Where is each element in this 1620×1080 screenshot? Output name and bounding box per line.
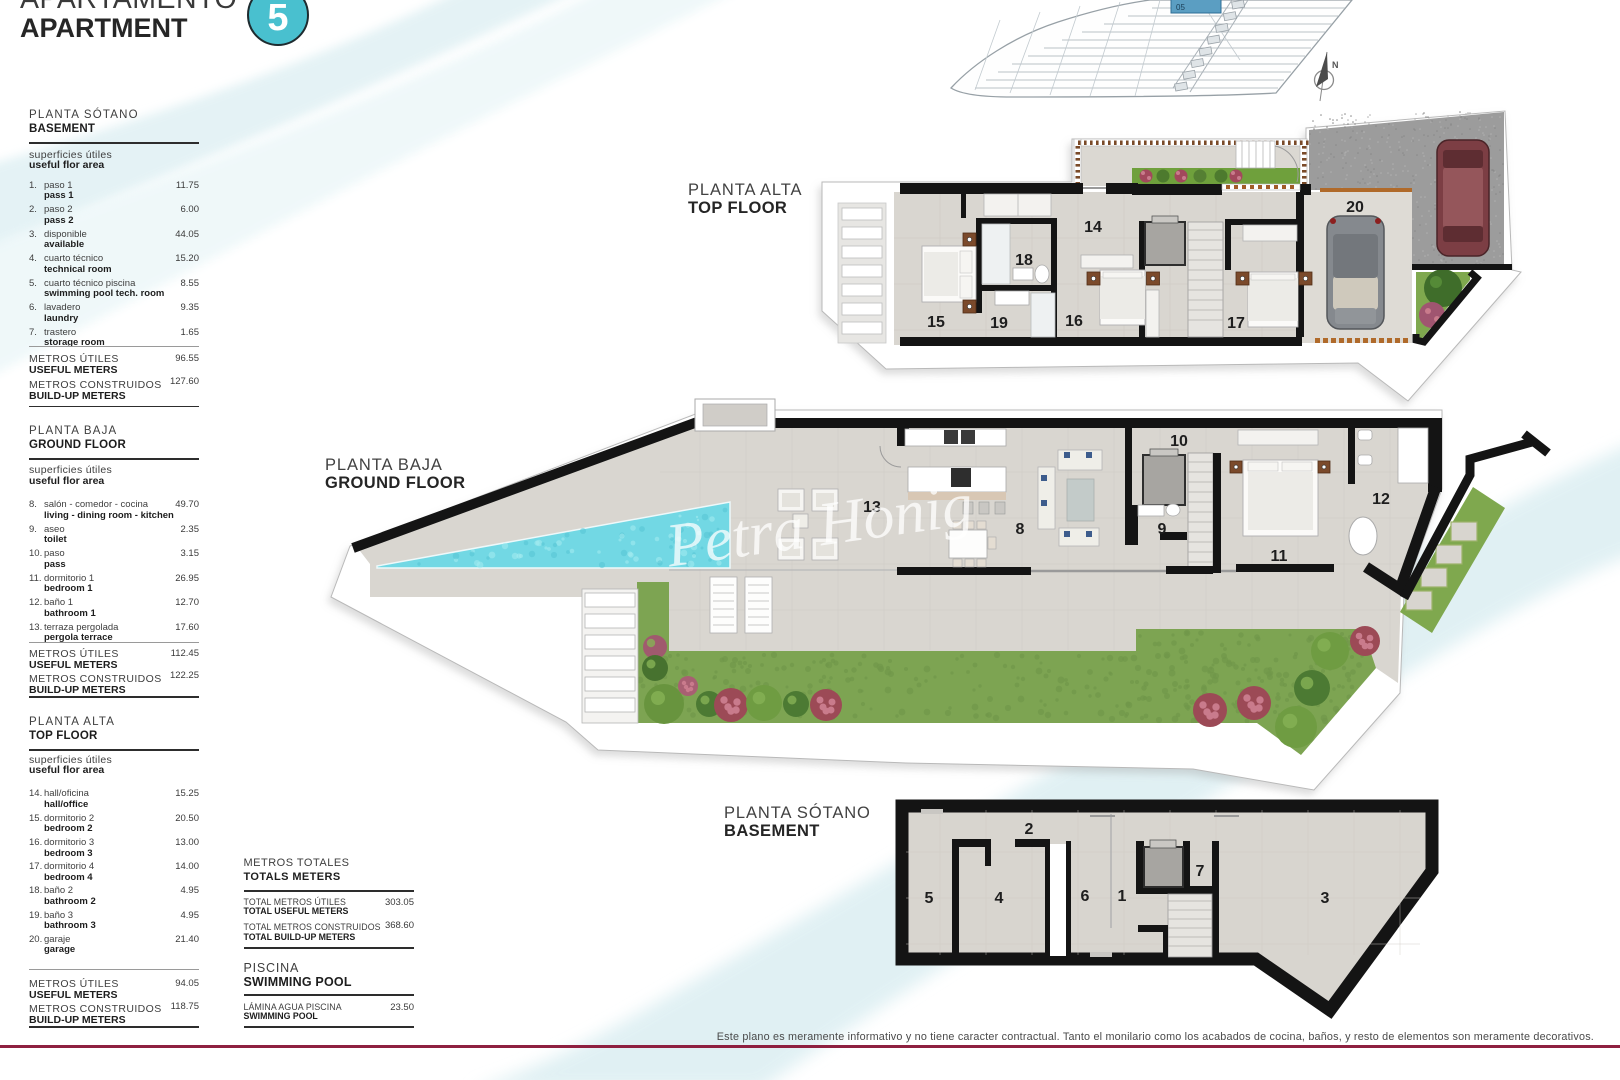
svg-text:9: 9	[1158, 521, 1167, 538]
svg-text:16: 16	[1065, 313, 1083, 330]
svg-text:3: 3	[1321, 890, 1330, 907]
svg-text:N: N	[1332, 60, 1339, 70]
svg-text:17: 17	[1227, 315, 1245, 332]
svg-text:15: 15	[927, 314, 945, 331]
svg-text:6: 6	[1081, 888, 1090, 905]
svg-text:20: 20	[1346, 199, 1364, 216]
svg-text:7: 7	[1196, 863, 1205, 880]
svg-text:18: 18	[1015, 252, 1033, 269]
svg-text:1: 1	[1118, 888, 1127, 905]
svg-text:14: 14	[1084, 219, 1102, 236]
svg-text:4: 4	[995, 890, 1004, 907]
svg-text:5: 5	[925, 890, 934, 907]
svg-text:2: 2	[1025, 821, 1034, 838]
svg-text:8: 8	[1016, 521, 1025, 538]
svg-text:11: 11	[1271, 548, 1288, 565]
svg-text:10: 10	[1170, 433, 1188, 450]
svg-text:12: 12	[1372, 491, 1390, 508]
svg-text:19: 19	[990, 315, 1008, 332]
svg-text:05: 05	[1176, 3, 1185, 12]
